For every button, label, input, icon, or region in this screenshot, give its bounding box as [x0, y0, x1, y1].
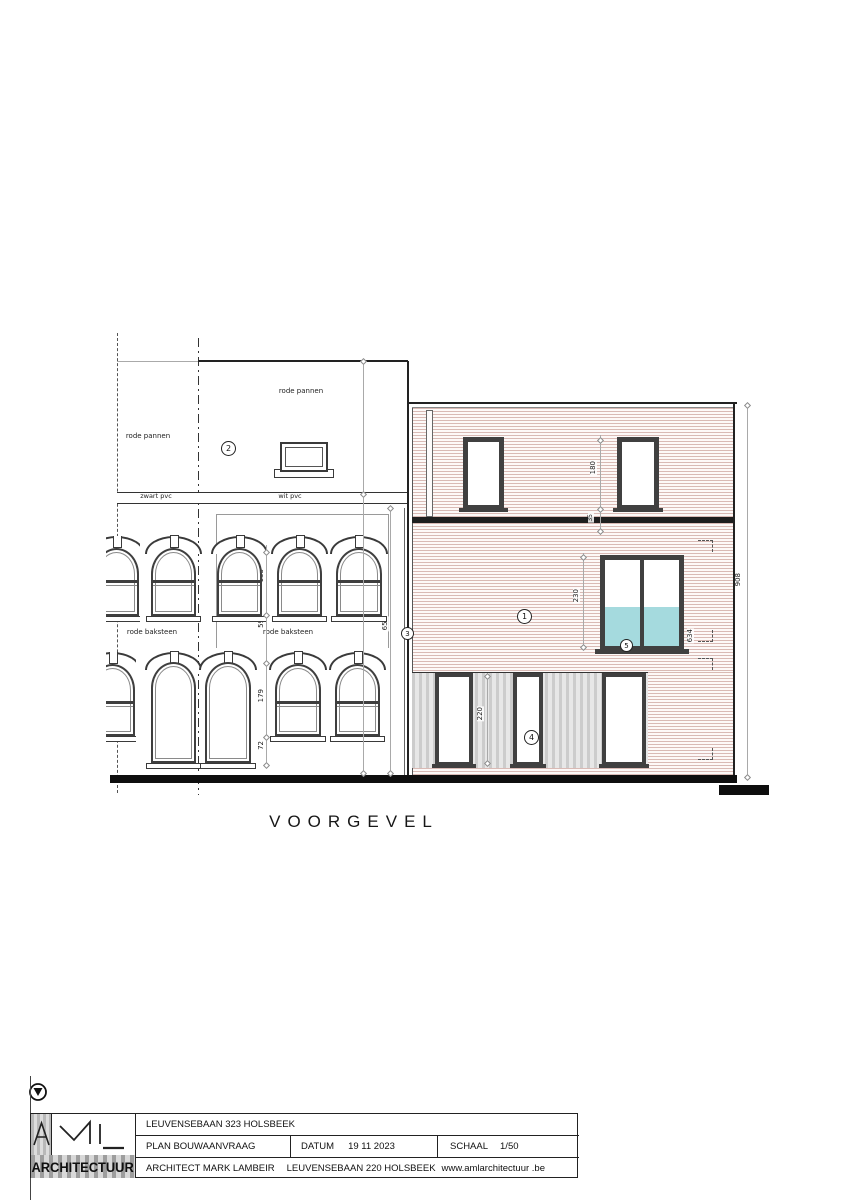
dim-sill-height: 72 [258, 740, 265, 751]
mid-window [600, 555, 684, 651]
logo-wordmark: ARCHITECTUUR [32, 1159, 134, 1175]
schaal-value: 1/50 [500, 1141, 519, 1152]
titleblock-row-plan: PLAN BOUWAANVRAAG DATUM 19 11 2023 SCHAA… [136, 1136, 579, 1158]
architect-name: ARCHITECT MARK LAMBEIR [146, 1163, 275, 1174]
website: www.amlarchitectuur .be [442, 1163, 545, 1174]
window-sill [272, 616, 327, 622]
plan-type: PLAN BOUWAANVRAAG [146, 1141, 255, 1152]
ref-bracket-4 [698, 748, 713, 760]
arch-keystone [354, 651, 363, 664]
downpipe [426, 410, 433, 517]
roof-material-label-right: rode pannen [270, 387, 332, 395]
dim-right-total-height: 908 [735, 572, 742, 587]
ground-door-3-sill [599, 764, 649, 768]
gutter-label-right: wit pvc [260, 493, 320, 500]
arch-keystone [296, 535, 305, 548]
mid-window-tint-right [644, 607, 679, 646]
drawing-sheet: rode pannen rode pannen zwart pvc wit pv… [0, 0, 848, 1200]
roof-ridge-line [198, 360, 408, 362]
ref-bubble-4: 4 [524, 730, 539, 745]
window-frame [151, 548, 196, 616]
window-sill [106, 616, 140, 622]
roof-material-label-left: rode pannen [118, 432, 178, 440]
window-sill [106, 736, 136, 742]
dimension-line [487, 673, 488, 766]
north-symbol-icon [28, 1082, 48, 1102]
window-transom-line [106, 706, 133, 707]
window-frame [277, 548, 322, 616]
mid-window-sill [595, 649, 689, 654]
ref-bracket-3 [698, 658, 713, 670]
dimension-line [583, 553, 584, 650]
frame-inner-line [209, 666, 247, 759]
window-transom-line [337, 706, 378, 707]
window-sill [270, 736, 326, 742]
window-transom [279, 580, 320, 583]
window-frame [106, 664, 135, 736]
window-sill [330, 736, 385, 742]
office-address: LEUVENSEBAAN 220 HOLSBEEK [287, 1163, 436, 1174]
dimension-marker [387, 505, 394, 512]
datum-cell: DATUM 19 11 2023 [291, 1136, 438, 1157]
junction-wall [407, 361, 409, 775]
plan-cell: PLAN BOUWAANVRAAG [136, 1136, 291, 1157]
titleblock-row-project: LEUVENSEBAAN 323 HOLSBEEK [136, 1114, 579, 1136]
arch-keystone [236, 535, 245, 548]
dim-top-window-height: 180 [590, 460, 597, 475]
window-frame [106, 548, 139, 616]
logo-ml-cell [52, 1114, 135, 1155]
window-sill [331, 616, 387, 622]
ref-bubble-2: 2 [221, 441, 236, 456]
dim-slab: 35 [588, 513, 594, 523]
ground-door-2 [513, 673, 543, 766]
dimension-line [363, 361, 364, 773]
door-frame [151, 662, 196, 763]
parapet-line [408, 402, 737, 404]
junction-wall-inner [404, 508, 405, 775]
ground-step [719, 785, 769, 795]
window-sill [146, 616, 201, 622]
elevation-drawing: rode pannen rode pannen zwart pvc wit pv… [0, 0, 848, 900]
roof-window-inner [285, 447, 323, 467]
window-transom-line [219, 585, 260, 586]
ground-door-2-sill [510, 764, 546, 768]
window-frame [336, 548, 382, 616]
window-frame [217, 548, 262, 616]
datum-value: 19 11 2023 [348, 1141, 395, 1152]
brick-label-left: rode baksteen [122, 628, 182, 636]
dim-lower-window-height: 179 [258, 688, 265, 703]
ref-bubble-5: 5 [620, 639, 633, 652]
ref-bracket-2 [698, 630, 713, 642]
top-window-2-sill [613, 508, 663, 512]
dimension-line [390, 508, 391, 773]
ground-door-1 [435, 673, 473, 766]
logo-a-cell [31, 1114, 52, 1155]
logo-block: ARCHITECTUUR [31, 1114, 136, 1178]
arch-keystone [294, 651, 303, 664]
drawing-title: VOORGEVEL [234, 812, 474, 832]
cladding-top-floor [412, 408, 733, 517]
top-window-2 [617, 437, 659, 510]
arch-keystone [170, 535, 179, 548]
window-transom-line [279, 585, 320, 586]
logo-wordmark-strip: ARCHITECTUUR [31, 1155, 135, 1178]
titleblock-table: LEUVENSEBAAN 323 HOLSBEEK PLAN BOUWAANVR… [136, 1114, 579, 1178]
arch-keystone [109, 652, 118, 664]
arch-keystone [113, 536, 122, 548]
gutter-label-left: zwart pvc [127, 493, 185, 500]
logo-a-icon [31, 1114, 52, 1155]
window-transom [337, 701, 378, 704]
door-frame [205, 662, 251, 763]
logo-ml-icon [52, 1114, 135, 1155]
dimension-line [747, 403, 748, 779]
window-transom [277, 701, 319, 704]
window-transom-line [106, 585, 137, 586]
dimension-line [600, 435, 601, 535]
frame-inner-line [279, 668, 317, 732]
titleblock-row-architect: ARCHITECT MARK LAMBEIR LEUVENSEBAAN 220 … [136, 1158, 579, 1178]
window-transom [338, 580, 380, 583]
dimension-marker [263, 762, 270, 769]
dimension-marker [263, 549, 270, 556]
arched-opening-clip [106, 652, 136, 746]
frame-inner-line [339, 668, 376, 732]
window-sill [212, 616, 267, 622]
ref-bubble-1: 1 [517, 609, 532, 624]
right-wall [733, 403, 735, 775]
door-threshold [146, 763, 201, 769]
north-symbol [28, 1082, 48, 1102]
dimension-marker [744, 774, 751, 781]
window-transom [219, 580, 260, 583]
dim-mid-window-height: 230 [573, 588, 580, 603]
arched-opening-clip [106, 536, 140, 626]
schaal-label: SCHAAL [450, 1141, 488, 1152]
ground-door-3 [602, 673, 646, 766]
window-transom-line [153, 585, 194, 586]
ground-door-1-sill [432, 764, 476, 768]
roof-window [280, 442, 328, 472]
frame-inner-line [155, 666, 192, 759]
ref-bubble-3: 3 [401, 627, 414, 640]
ground-line [110, 775, 737, 783]
window-transom [153, 580, 194, 583]
top-window-1 [463, 437, 504, 510]
door-threshold [200, 763, 256, 769]
dim-right-detail: 634 [687, 628, 694, 643]
dimension-marker [744, 402, 751, 409]
dim-ground-door-height: 220 [477, 706, 484, 721]
window-frame [335, 664, 380, 736]
window-transom-line [277, 706, 319, 707]
window-transom-line [338, 585, 380, 586]
axis-line [198, 338, 199, 795]
title-block: ARCHITECTUUR LEUVENSEBAAN 323 HOLSBEEK P… [30, 1113, 578, 1178]
project-address: LEUVENSEBAAN 323 HOLSBEEK [146, 1119, 295, 1130]
schaal-cell: SCHAAL 1/50 [438, 1136, 579, 1157]
frame-inner-line [106, 668, 131, 732]
datum-label: DATUM [301, 1141, 334, 1152]
window-transom [106, 580, 137, 583]
window-transom [106, 701, 133, 704]
ref-bracket-1 [698, 540, 713, 552]
roof-ridge-line-left [117, 361, 198, 362]
top-window-1-sill [459, 508, 508, 512]
window-frame [275, 664, 321, 736]
